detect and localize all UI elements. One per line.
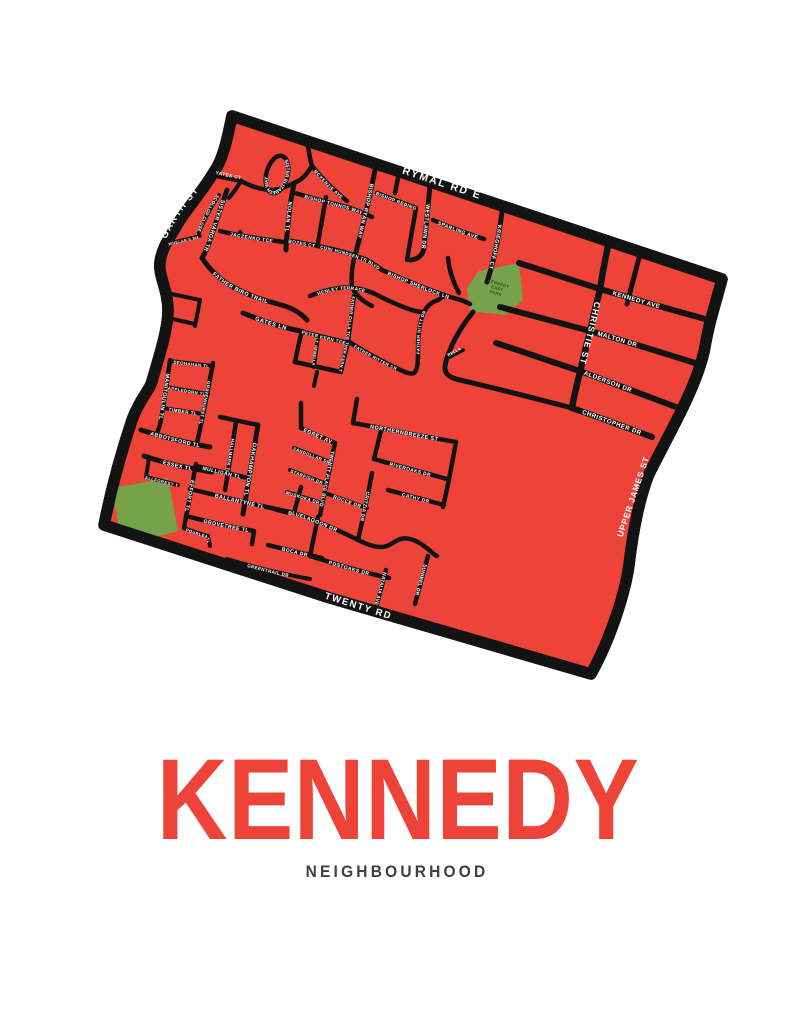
svg-text:KENNEDY: KENNEDY [157, 735, 640, 864]
svg-text:NEIGHBOURHOOD: NEIGHBOURHOOD [306, 862, 489, 881]
